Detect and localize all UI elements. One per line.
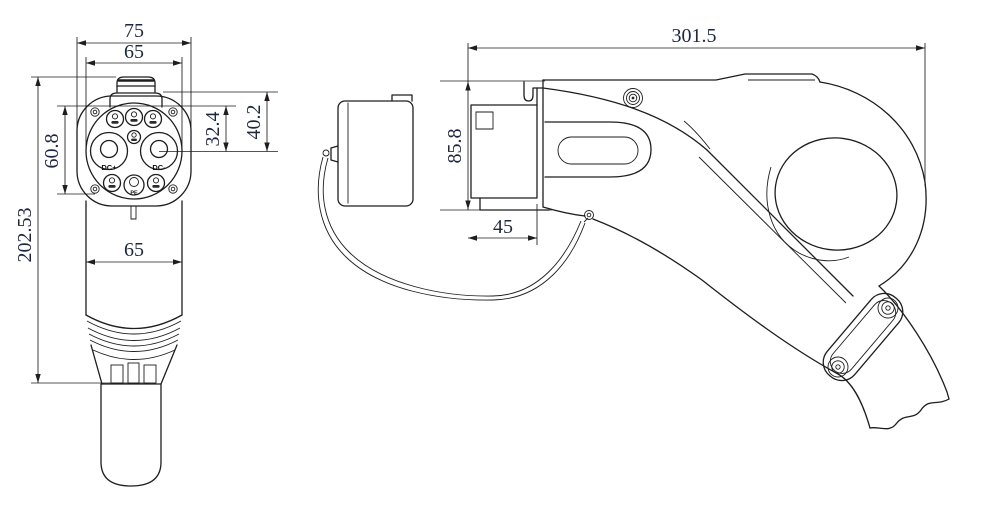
cable-clamp [816,286,909,387]
pe-pin: PE [124,175,144,197]
gun-body [543,74,949,429]
gun-nozzle [471,82,549,210]
signal-pins [104,109,165,192]
handle-hole [768,130,904,258]
dc-plus-pin: DC+ [91,133,128,173]
lanyard-cord [318,157,585,300]
front-view: DC+ DC- PE [14,20,278,486]
dim-pin-span: 60.8 [41,134,63,169]
dim-overall-height: 202.53 [14,208,36,263]
dc-minus-pin: DC- [141,133,178,173]
dim-overall-length: 301.5 [672,25,717,47]
dim-top-to-center: 40.2 [243,105,265,140]
pe-label: PE [130,191,138,197]
dust-cap [323,95,413,206]
dim-face-diameter: 65 [124,41,144,63]
connector-flange [77,96,191,206]
face-key-nub [131,206,136,219]
body-recess-panel [545,122,651,177]
dc-minus-label: DC- [152,163,166,172]
side-dimensions: 301.5 85.8 45 [440,25,925,245]
cable-break-line [870,399,949,429]
top-screw [624,89,643,108]
dim-front-overall-width: 75 [124,20,144,42]
dim-pin-row-to-center: 32.4 [202,112,224,147]
drawing-svg: DC+ DC- PE [0,0,1004,513]
dim-nozzle-length: 45 [493,216,513,238]
technical-drawing-canvas: DC+ DC- PE [0,0,1004,513]
dc-plus-label: DC+ [101,163,117,172]
front-dimensions: 75 65 202.53 60.8 32.4 [14,20,278,383]
side-view: 301.5 85.8 45 [318,25,949,429]
dim-body-width: 65 [124,239,144,261]
dim-front-height: 85.8 [444,129,466,164]
